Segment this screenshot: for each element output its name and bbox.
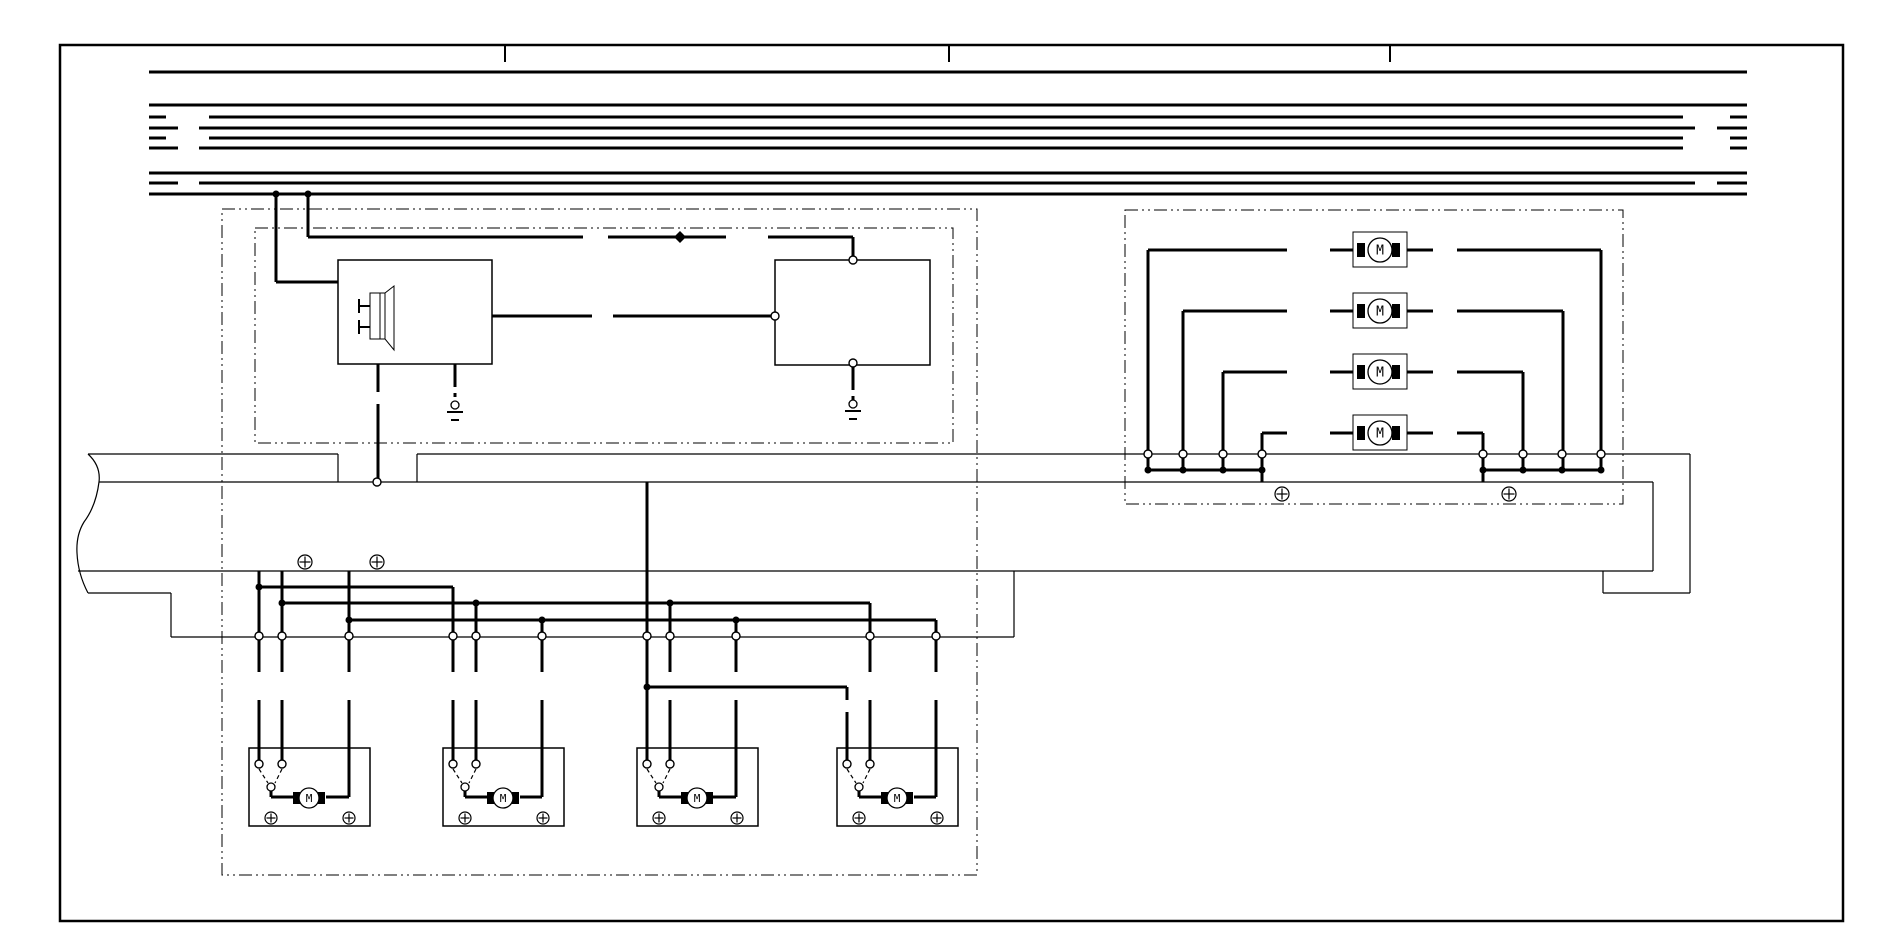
- connector-terminal: [1144, 450, 1152, 458]
- switch-pivot-terminal: [267, 783, 275, 791]
- switch-throw-dash: [647, 769, 656, 783]
- motor-label: M: [500, 792, 507, 805]
- connector-terminal: [538, 632, 546, 640]
- motor-label: M: [1376, 427, 1384, 442]
- switch-throw-dash: [453, 769, 462, 783]
- connector-terminal: [666, 632, 674, 640]
- junction-dot: [305, 191, 312, 198]
- junction-dot: [539, 617, 546, 624]
- junction-dot: [1145, 467, 1152, 474]
- connector-terminal: [666, 760, 674, 768]
- motor-brush: [1357, 365, 1365, 379]
- connector-terminal: [255, 632, 263, 640]
- connector-terminal: [849, 359, 857, 367]
- junction-dot: [1180, 467, 1187, 474]
- switch-throw-dash: [259, 769, 268, 783]
- switch-throw-dash: [847, 769, 856, 783]
- junction-dot: [279, 600, 286, 607]
- connector-terminal: [849, 256, 857, 264]
- motor-label: M: [694, 792, 701, 805]
- connector-terminal: [771, 312, 779, 320]
- motor-label: M: [1376, 366, 1384, 381]
- junction-dot: [1220, 467, 1227, 474]
- connector-terminal: [843, 760, 851, 768]
- connector-terminal: [643, 760, 651, 768]
- connector-terminal: [449, 632, 457, 640]
- connector-terminal: [1179, 450, 1187, 458]
- connector-terminal: [1258, 450, 1266, 458]
- connector-terminal: [643, 632, 651, 640]
- junction-dot: [256, 584, 263, 591]
- switch-throw-dash: [275, 769, 282, 783]
- motor-brush: [1392, 243, 1400, 257]
- motor-brush: [1392, 365, 1400, 379]
- motor-brush: [1357, 426, 1365, 440]
- connector-terminal: [373, 478, 381, 486]
- junction-dot: [1598, 467, 1605, 474]
- motor-brush: [1392, 304, 1400, 318]
- ground-bolt-circle-1: [849, 400, 857, 408]
- flow-diamond: [674, 231, 686, 243]
- connector-terminal: [1558, 450, 1566, 458]
- junction-dot: [644, 684, 651, 691]
- motor-label: M: [306, 792, 313, 805]
- harness-break-squiggle: [77, 454, 99, 593]
- switch-pivot-terminal: [855, 783, 863, 791]
- switch-throw-dash: [469, 769, 476, 783]
- page-border: [60, 45, 1843, 921]
- connector-terminal: [1219, 450, 1227, 458]
- connector-terminal: [1479, 450, 1487, 458]
- wiring-diagram-page: MMMMMMMM: [0, 0, 1900, 950]
- schematic-canvas: MMMMMMMM: [0, 0, 1900, 950]
- motor-label: M: [1376, 305, 1384, 320]
- connector-terminal: [449, 760, 457, 768]
- connector-terminal: [732, 632, 740, 640]
- switch-pivot-terminal: [461, 783, 469, 791]
- junction-dot: [1520, 467, 1527, 474]
- motor-brush: [1392, 426, 1400, 440]
- connector-terminal: [932, 632, 940, 640]
- junction-dot: [1559, 467, 1566, 474]
- junction-dot: [733, 617, 740, 624]
- connector-terminal: [345, 632, 353, 640]
- junction-dot: [273, 191, 280, 198]
- junction-dot: [1480, 467, 1487, 474]
- junction-dot: [1259, 467, 1266, 474]
- junction-dot: [346, 617, 353, 624]
- switch-throw-dash: [663, 769, 670, 783]
- connector-terminal: [866, 632, 874, 640]
- connector-terminal: [866, 760, 874, 768]
- ground-bolt-circle-0: [451, 401, 459, 409]
- switch-pivot-terminal: [655, 783, 663, 791]
- motor-brush: [1357, 243, 1365, 257]
- horn-icon-cone: [385, 286, 394, 350]
- connector-terminal: [472, 632, 480, 640]
- motor-brush: [1357, 304, 1365, 318]
- junction-dot: [473, 600, 480, 607]
- horn-unit-box: [338, 260, 492, 364]
- motor-label: M: [1376, 244, 1384, 259]
- motor-label: M: [894, 792, 901, 805]
- connector-terminal: [1597, 450, 1605, 458]
- connector-terminal: [472, 760, 480, 768]
- connector-terminal: [255, 760, 263, 768]
- boundary-box-0: [222, 209, 977, 875]
- connector-terminal: [1519, 450, 1527, 458]
- connector-terminal: [278, 760, 286, 768]
- relay-box: [775, 260, 930, 365]
- connector-terminal: [278, 632, 286, 640]
- switch-throw-dash: [863, 769, 870, 783]
- horn-icon-driver: [370, 293, 385, 339]
- junction-dot: [667, 600, 674, 607]
